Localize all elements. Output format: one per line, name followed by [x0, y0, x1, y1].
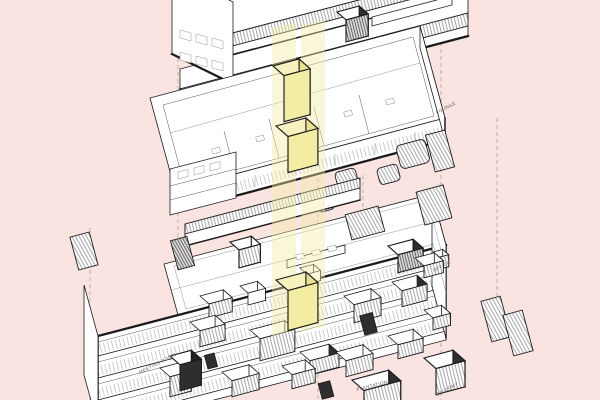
exploded-axonometric-diagram: LOUNGE OFFICE MEETING ROOM PLANTATION BA… — [0, 0, 600, 400]
drawing-canvas: LOUNGE OFFICE MEETING ROOM PLANTATION BA… — [0, 0, 600, 400]
